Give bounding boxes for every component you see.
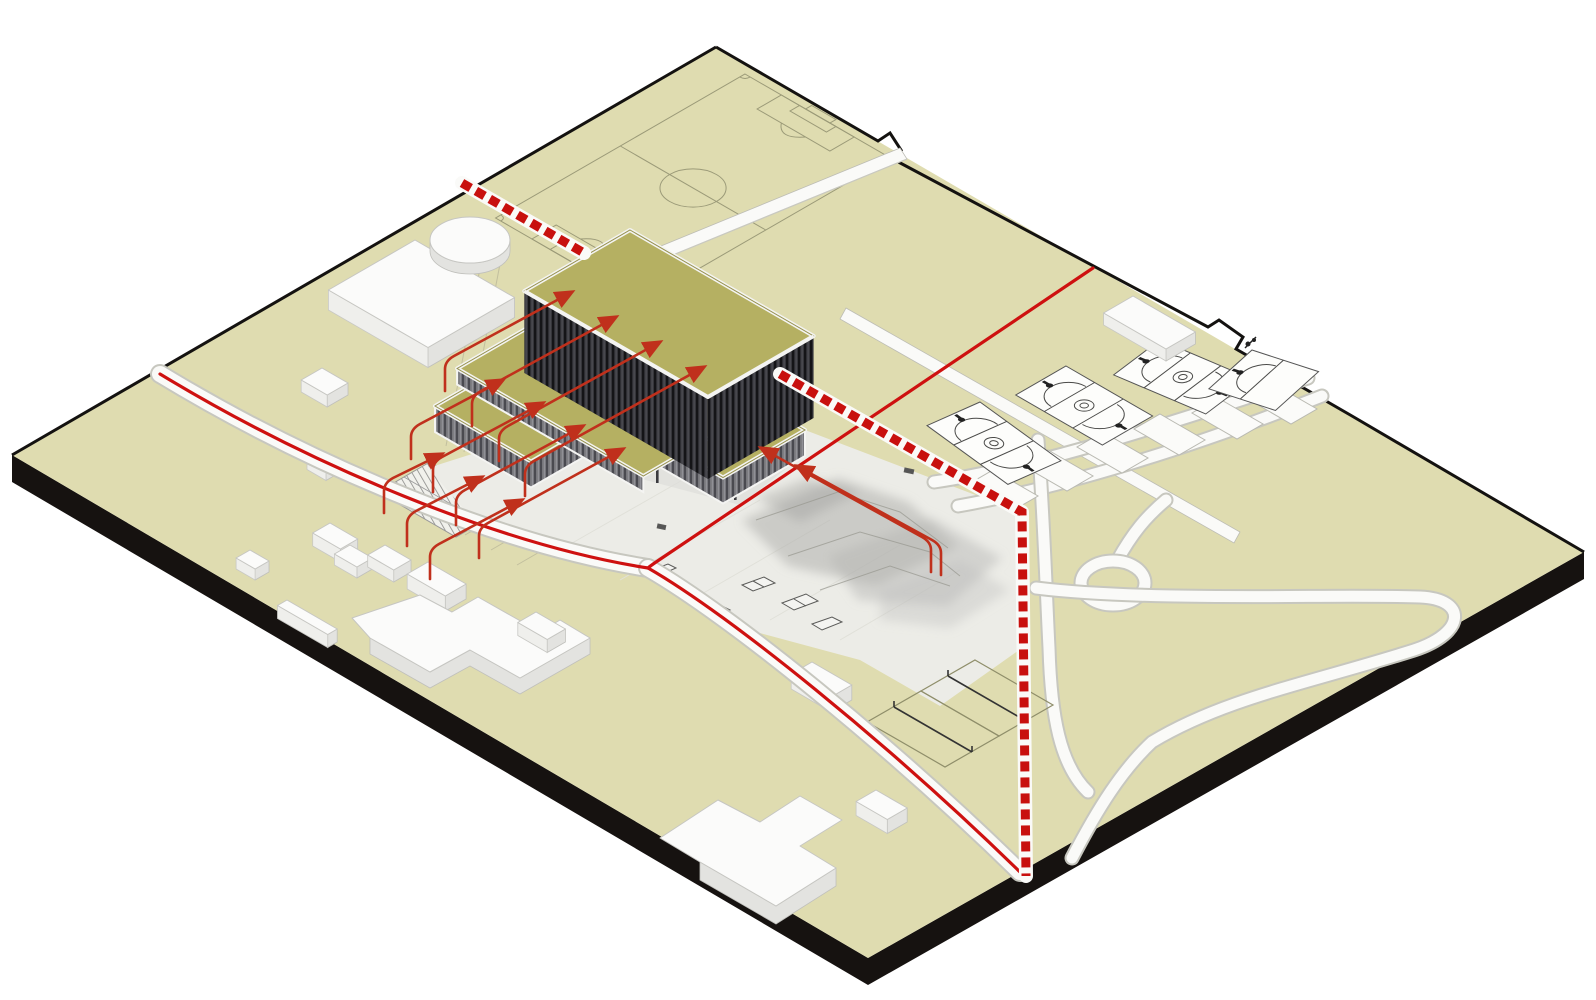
figure-sketch: [1245, 337, 1256, 348]
site-plan-stage: [0, 0, 1596, 1000]
axonometric-site-diagram: [0, 0, 1596, 1000]
cylinder-building: [430, 217, 510, 274]
